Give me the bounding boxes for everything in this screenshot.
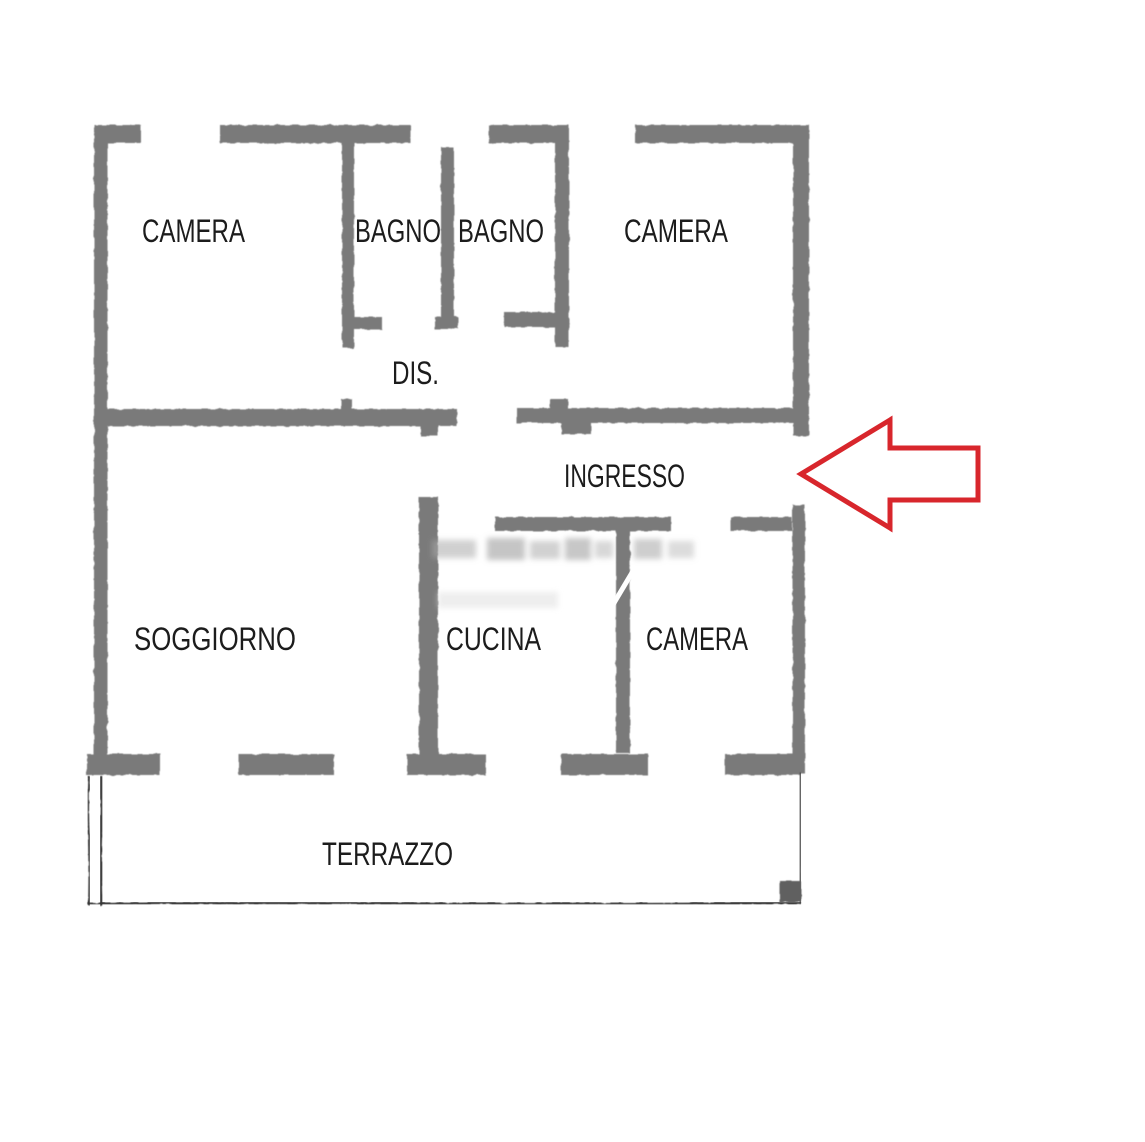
svg-text:CUCINA: CUCINA: [446, 621, 542, 657]
svg-text:CAMERA: CAMERA: [142, 213, 245, 249]
svg-text:CAMERA: CAMERA: [624, 213, 728, 249]
svg-text:TERRAZZO: TERRAZZO: [322, 836, 453, 872]
svg-text:BAGNO: BAGNO: [355, 213, 441, 249]
svg-text:INGRESSO: INGRESSO: [564, 458, 685, 494]
svg-text:DIS.: DIS.: [392, 355, 439, 391]
svg-text:CAMERA: CAMERA: [646, 621, 748, 657]
svg-text:SOGGIORNO: SOGGIORNO: [134, 621, 296, 657]
svg-text:BAGNO: BAGNO: [458, 213, 544, 249]
